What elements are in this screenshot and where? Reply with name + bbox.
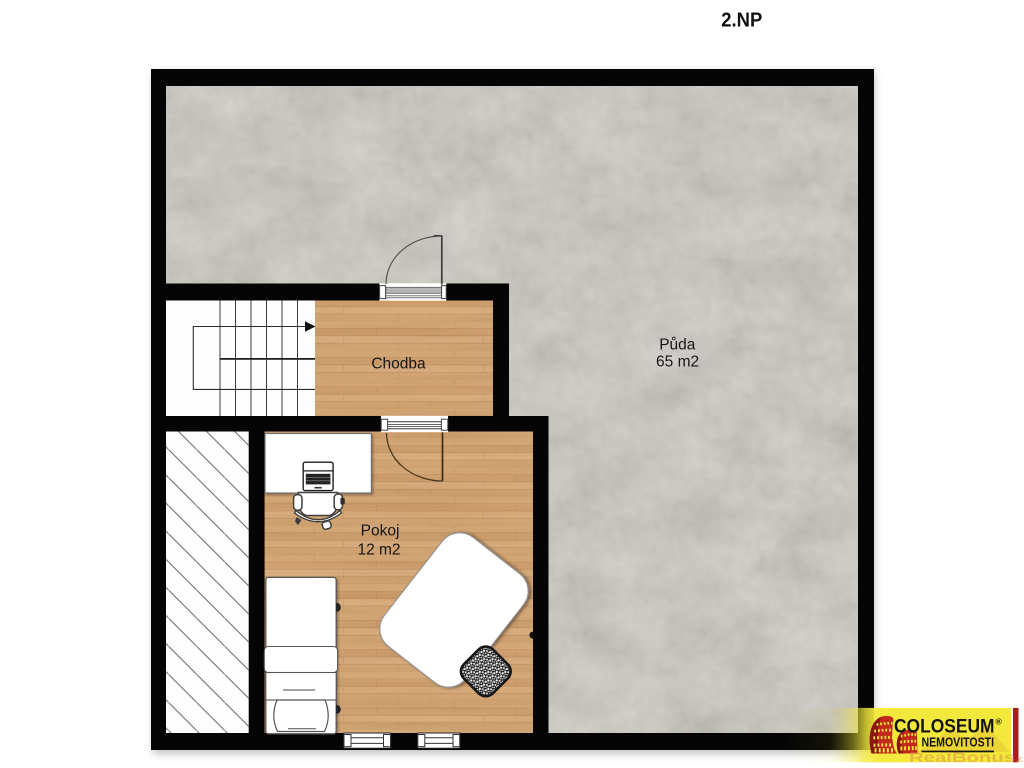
svg-text:Pokoj: Pokoj — [361, 523, 400, 540]
svg-text:Půda: Půda — [659, 337, 696, 354]
svg-text:RealBonus: RealBonus — [909, 749, 1015, 765]
svg-text:COLOSEUM: COLOSEUM — [894, 716, 995, 737]
svg-text:65 m2: 65 m2 — [656, 354, 699, 371]
svg-text:®: ® — [996, 717, 1003, 727]
svg-text:12 m2: 12 m2 — [357, 542, 400, 559]
svg-text:Chodba: Chodba — [371, 356, 426, 373]
svg-text:NEMOVITOSTI: NEMOVITOSTI — [922, 735, 995, 749]
svg-text:2.NP: 2.NP — [721, 9, 762, 32]
svg-text:.cz: .cz — [1016, 754, 1024, 764]
